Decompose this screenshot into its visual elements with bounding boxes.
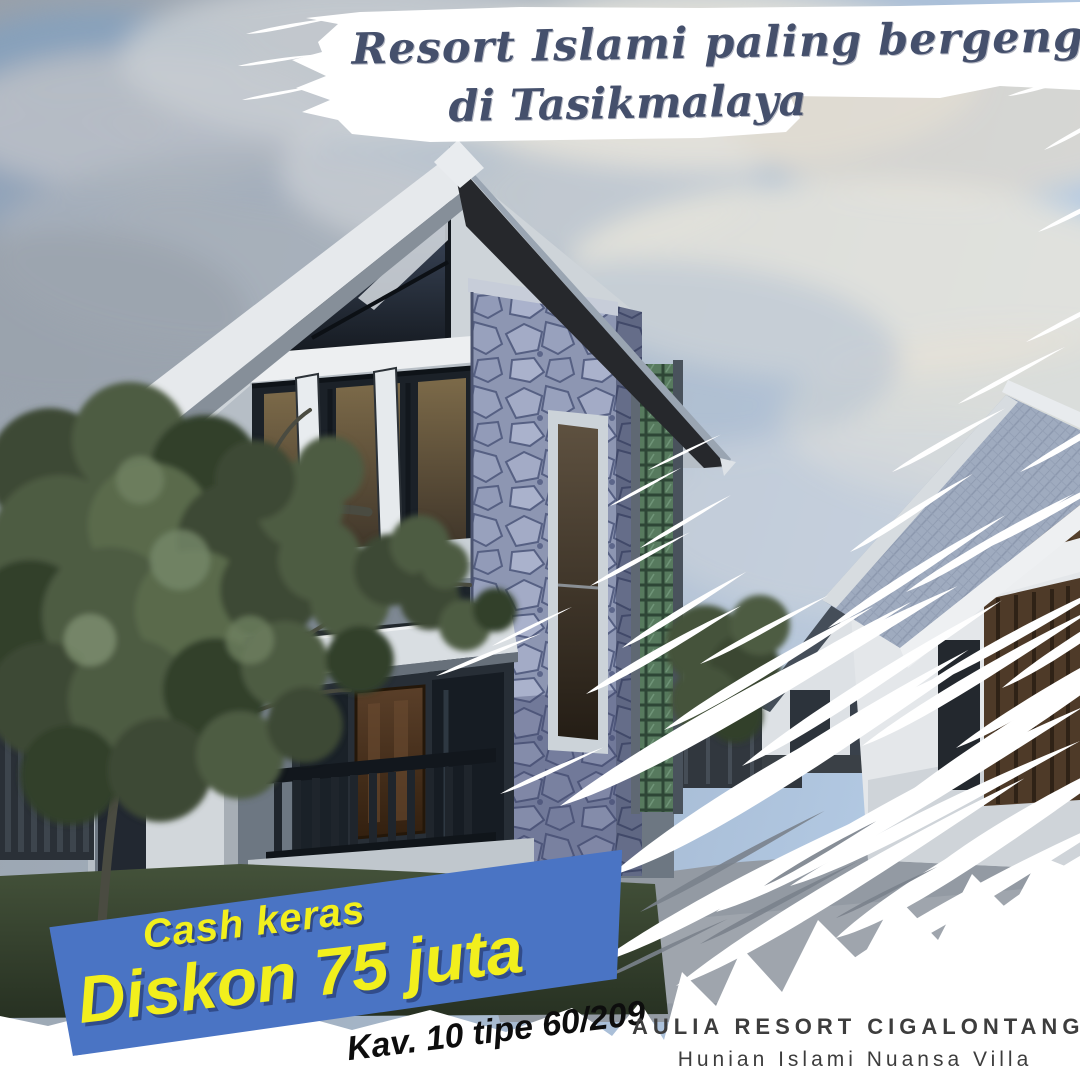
project-name: AULIA RESORT CIGALONTANG <box>632 1014 1078 1040</box>
promo-poster: Resort Islami paling bergengsi di Tasikm… <box>0 0 1080 1080</box>
headline: Resort Islami paling bergengsi di Tasikm… <box>351 11 1080 134</box>
project-tagline: Hunian Islami Nuansa Villa <box>632 1048 1078 1072</box>
footer: AULIA RESORT CIGALONTANG Hunian Islami N… <box>632 1014 1078 1072</box>
